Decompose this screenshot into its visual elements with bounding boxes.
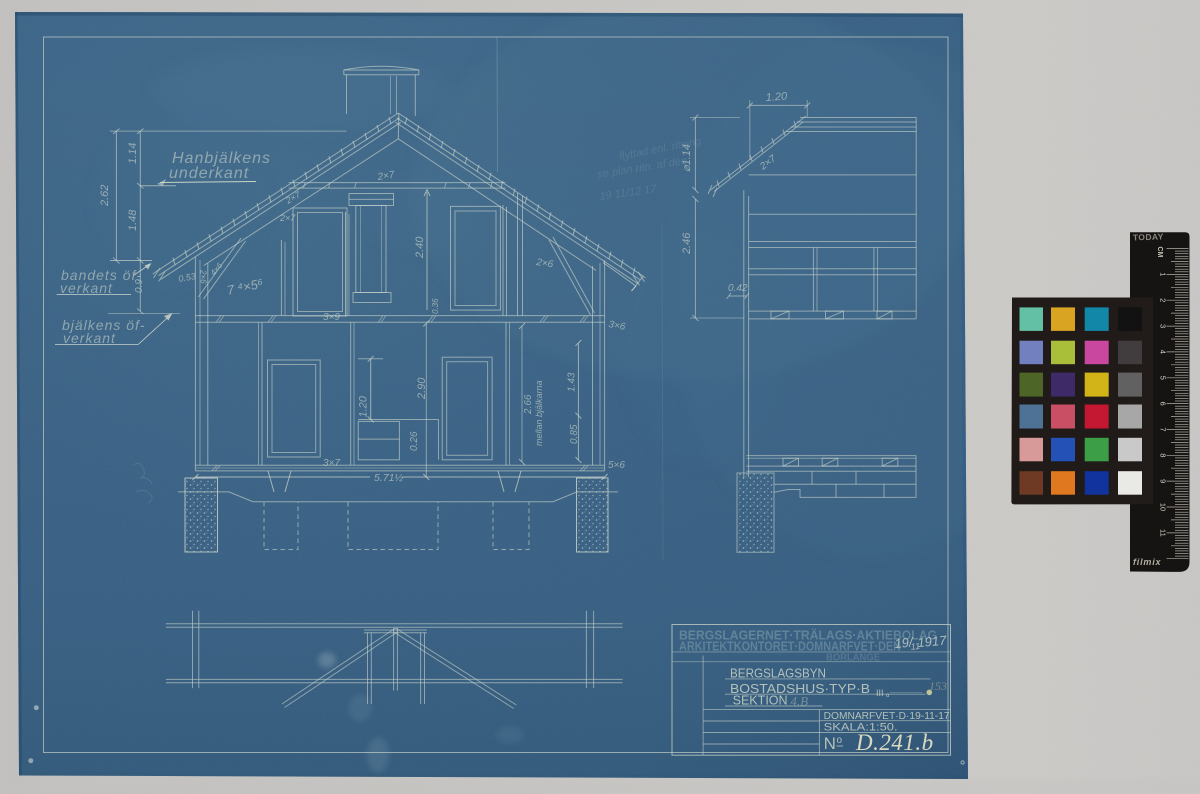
- svg-text:verkant: verkant: [60, 280, 113, 296]
- svg-text:3×9: 3×9: [323, 312, 340, 323]
- svg-text:2.46: 2.46: [681, 232, 693, 255]
- svg-text:1.14: 1.14: [127, 143, 139, 164]
- svg-text:0.85: 0.85: [569, 424, 580, 444]
- svg-text:0.26: 0.26: [409, 431, 420, 451]
- svg-text:1.20: 1.20: [358, 395, 370, 417]
- svg-text:1: 1: [1159, 272, 1168, 276]
- svg-text:SEKTION: SEKTION: [733, 694, 788, 708]
- svg-text:o: o: [837, 735, 843, 746]
- svg-text:1.20: 1.20: [765, 90, 788, 104]
- svg-text:BORLÄNGE: BORLÄNGE: [826, 651, 880, 664]
- svg-text:4.B: 4.B: [790, 694, 808, 709]
- svg-text:1917: 1917: [917, 633, 948, 651]
- svg-text:2: 2: [1159, 298, 1168, 302]
- svg-text:N: N: [824, 734, 836, 753]
- svg-text:1.43: 1.43: [567, 372, 578, 392]
- svg-text:0.42: 0.42: [728, 283, 748, 294]
- svg-text:153: 153: [929, 679, 947, 693]
- svg-text:CM: CM: [1156, 247, 1163, 258]
- svg-text:3: 3: [1159, 324, 1168, 328]
- svg-text:ARKITEKTKONTORET·DOMNARFVET·DE: ARKITEKTKONTORET·DOMNARFVET·DEN: [679, 640, 901, 654]
- svg-text:2.90: 2.90: [416, 377, 428, 400]
- svg-text:4: 4: [1159, 350, 1168, 354]
- svg-text:8: 8: [1159, 453, 1168, 457]
- svg-text:underkant: underkant: [169, 165, 249, 182]
- svg-text:0.36: 0.36: [431, 298, 440, 314]
- svg-text:1.48: 1.48: [127, 209, 139, 231]
- svg-text:6: 6: [1159, 402, 1168, 406]
- svg-text:2.66: 2.66: [523, 394, 534, 415]
- svg-text:10: 10: [1159, 503, 1168, 511]
- svg-text:11: 11: [1159, 529, 1168, 537]
- svg-text:5×6: 5×6: [608, 460, 625, 471]
- svg-text:0.9: 0.9: [134, 279, 145, 293]
- svg-text:2×7: 2×7: [279, 213, 296, 223]
- svg-text:9: 9: [1159, 479, 1168, 483]
- svg-text:5.71½: 5.71½: [374, 472, 403, 484]
- svg-text:7: 7: [1159, 427, 1168, 431]
- svg-text:2.62: 2.62: [99, 185, 111, 207]
- svg-text:BERGSLAGSBYN: BERGSLAGSBYN: [730, 666, 826, 681]
- svg-text:⌀1.14: ⌀1.14: [681, 144, 693, 172]
- svg-text:2×6: 2×6: [199, 269, 208, 284]
- svg-text:III: III: [876, 688, 884, 698]
- svg-text:TODAY: TODAY: [1133, 231, 1164, 242]
- svg-text:3×7: 3×7: [323, 458, 340, 469]
- svg-text:DOMNARFVET·D·19-11-17: DOMNARFVET·D·19-11-17: [824, 710, 950, 722]
- svg-text:verkant: verkant: [63, 330, 116, 346]
- svg-text:2.40: 2.40: [414, 236, 426, 259]
- svg-text:D.241.b: D.241.b: [855, 730, 934, 755]
- svg-text:5: 5: [1159, 376, 1168, 380]
- svg-text:filmix: filmix: [1133, 557, 1162, 567]
- svg-text:mellan bjälkarna: mellan bjälkarna: [534, 380, 544, 446]
